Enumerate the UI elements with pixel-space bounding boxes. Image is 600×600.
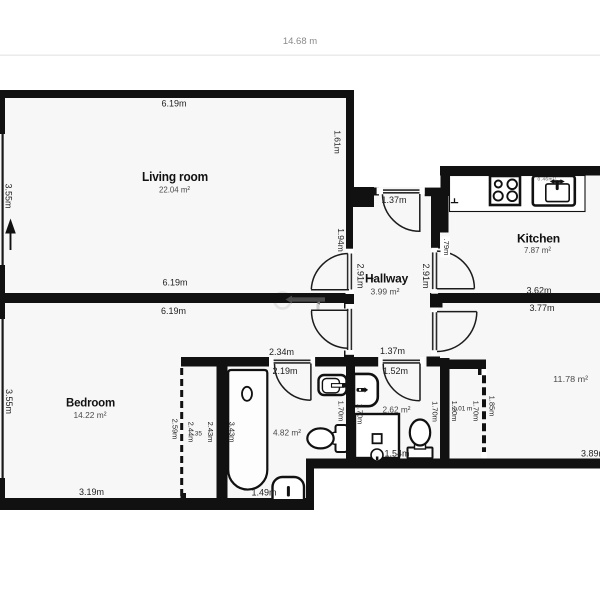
svg-text:1.70m: 1.70m [472,401,481,422]
svg-text:2.91m: 2.91m [421,263,431,288]
svg-text:3.62m: 3.62m [526,286,551,296]
svg-text:6.19m: 6.19m [162,277,187,287]
svg-text:3.55m: 3.55m [4,389,14,414]
svg-text:Bedroom: Bedroom [66,396,115,410]
svg-text:2.91m: 2.91m [356,263,366,288]
svg-text:1.49m: 1.49m [251,488,276,498]
svg-text:2.62 m²: 2.62 m² [383,404,411,414]
svg-text:11.78 m²: 11.78 m² [553,374,588,384]
svg-text:1.94m: 1.94m [336,228,346,252]
svg-text:4.82 m²: 4.82 m² [273,427,301,437]
svg-text:.79m: .79m [442,239,451,256]
svg-text:1.85m: 1.85m [488,396,497,417]
svg-text:6.19m: 6.19m [161,98,186,108]
svg-text:2.19m: 2.19m [272,366,297,376]
svg-text:2.43m: 2.43m [206,422,215,443]
svg-text:3.55m: 3.55m [4,183,14,208]
svg-text:0.46m¹¹: 0.46m¹¹ [538,177,557,183]
svg-text:1.01 m: 1.01 m [453,406,472,413]
svg-text:.35: .35 [193,431,202,438]
svg-text:7.87 m²: 7.87 m² [524,245,551,255]
svg-text:14.68 m: 14.68 m [283,36,317,47]
svg-text:1.54m: 1.54m [384,449,409,459]
svg-text:3.19m: 3.19m [79,487,104,497]
svg-text:3.99 m²: 3.99 m² [371,286,400,296]
svg-text:3.43m: 3.43m [228,422,237,443]
svg-text:1.61m: 1.61m [333,130,343,154]
svg-text:14.22 m²: 14.22 m² [74,410,107,420]
svg-text:1.52m: 1.52m [383,366,408,376]
svg-text:1.70m: 1.70m [431,401,440,422]
svg-text:1.70m: 1.70m [337,401,346,422]
svg-text:22.04 m²: 22.04 m² [159,185,190,195]
svg-text:2.59m: 2.59m [171,419,180,440]
svg-text:3.77m: 3.77m [529,303,554,313]
svg-text:Living room: Living room [142,169,208,184]
svg-text:1.37m: 1.37m [380,346,405,356]
svg-text:3.89m: 3.89m [581,449,600,459]
svg-text:6.19m: 6.19m [161,306,186,316]
svg-text:2.34m: 2.34m [269,347,294,357]
svg-text:1.37m: 1.37m [381,195,406,205]
svg-text:Kitchen: Kitchen [517,232,560,246]
svg-text:Hallway: Hallway [365,272,409,286]
svg-text:1.70m: 1.70m [356,404,365,425]
